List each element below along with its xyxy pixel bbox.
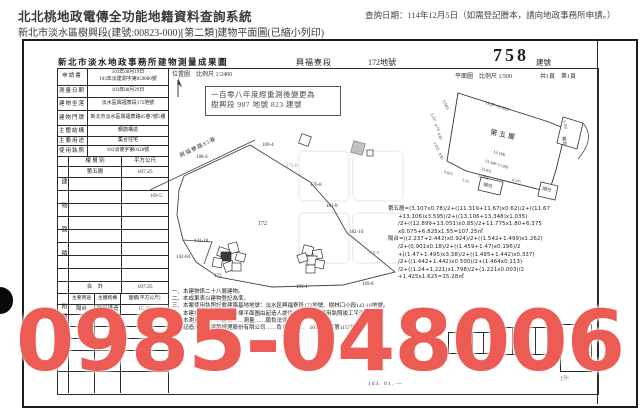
floor-label: 第五層 [69,167,122,177]
office-title: 新北市淡水地政事務所建物測量成果圖 [58,56,228,68]
document-title: 新北市淡水區樹興段(建號:00823-000)[第二類]建物平面圖(已縮小列印) [18,24,324,39]
parcel-label: 172 [258,221,267,227]
query-date: 查詢日期：114年12月5日（如需登記謄本，請向地政事務所申請。） [365,9,615,21]
row-label: 使用執照 [57,146,88,156]
plan-scale-label: 平面圖 比例尺 1/500 [455,71,512,80]
calc-line: +13.106)x3.595)/2+((13.106+13.348)x1.035… [388,214,602,222]
calc-line: +1.425x1.625=15.28㎡ [388,274,602,282]
land-number: 172地號 [368,57,396,68]
row-label: 主要用途 [57,137,88,145]
section-label-building-area: 建物面積 [58,162,69,290]
section-name: 興福寮段 [296,57,332,68]
row-value2: 103年淡建測字第059880號 [99,77,157,83]
parcel-label: 169-4 [262,143,274,148]
location-map-drawing [145,118,415,303]
building-number-unit: 建號 [536,57,551,68]
rescale-stamp: 一百零八年度經重測後變更為 樹興段 987 地號 823 建號 [205,86,341,116]
calc-line: /2+((1.442+1.442)x0.500)/2+(1.464x0.113) [388,259,602,267]
north-arrow-icon [171,78,185,98]
calc-line: /2+(0.901x0.18)/2+((1.459+1.47)x0.196)/2 [388,244,602,252]
building-number: 758 [493,45,529,66]
parcel-label: 172-8 [286,164,298,169]
parcel-label: 182-10 [349,230,363,235]
page: 北北桃地政電傳全功能地籍資料查詢系統 查詢日期：114年12月5日（如需登記謄本… [0,0,640,412]
system-title: 北北桃地政電傳全功能地籍資料查詢系統 [18,6,252,25]
parcel-label: 118-8 [368,251,379,256]
row-label: 主體結構 [57,126,88,136]
col-header-floor: 樓 層 別 [69,157,122,166]
punch-hole-artifact [0,287,13,314]
row-label: 申請書 [57,68,88,85]
calc-line: 第五層=(3.107x0.78)/2+((11.319+11.67)x0.62)… [388,206,602,214]
parcel-label: 142-84 [176,255,190,260]
row-value: 淡水區興福寮段172地號 [88,98,168,110]
table-row: 申請書 103年08月19日 103年淡建測字第059880號 [57,68,168,86]
parcel-label: 142-18 [194,239,208,244]
balcony-label: 陽台 [542,186,552,193]
parcel-label: 169-5 [150,194,162,199]
rescale-stamp-line2: 樹興段 987 地號 823 建號 [211,100,337,110]
parcel-label: 169-8 [362,282,374,287]
floor-plan-drawing [425,85,605,215]
rescale-stamp-line1: 一百零八年度經重測後變更為 [211,90,337,100]
balcony-label: 陽台 [483,182,493,189]
area-calculations: 第五層=(3.107x0.78)/2+((11.319+11.67)x0.62)… [388,206,602,282]
calc-line: +((1.47+1.495)x3.38)/2+((1.495+1.442)x0.… [388,252,602,260]
parcel-label: 188-4 [196,155,208,160]
row-value: 103年08月29日 [88,86,168,97]
parcel-label: 172 [214,274,222,279]
parcel-label: 176-8 [310,183,322,188]
row-label: 測量日期 [57,86,88,97]
row-label: 建物門牌 [57,111,88,125]
calc-line: /2+((12.899+13.051)x0.85)/2+11.775x1.80+… [388,221,602,229]
phone-watermark: 0985-048006 [16,292,624,390]
row-label: 建物坐落 [57,98,88,110]
parcel-label: 181-8 [326,204,338,209]
location-map-scale-label: 位置圖 比例尺 1/2400 [172,69,232,78]
calc-line: 陽台=((2.237+2.442)x0.924)/2+((1.542+1.499… [388,236,602,244]
table-row: 測量日期 103年08月29日 [57,86,168,98]
table-row: 建物坐落 淡水區興福寮段172地號 [57,98,168,111]
page-count-label: 共1頁 第1頁 [540,71,576,80]
